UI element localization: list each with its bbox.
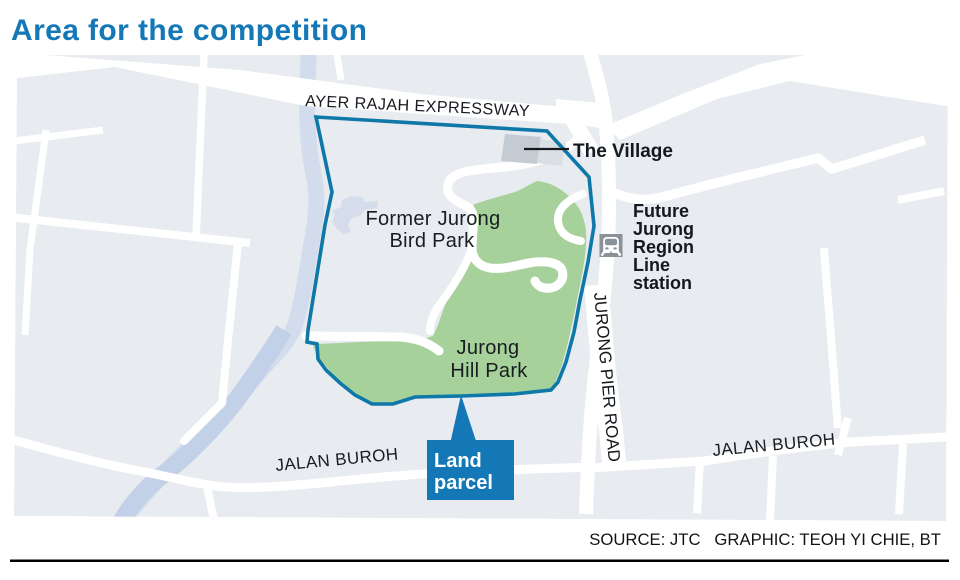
svg-text:Jurong: Jurong <box>633 219 694 239</box>
svg-text:The Village: The Village <box>573 141 673 162</box>
svg-text:Bird Park: Bird Park <box>390 230 476 252</box>
svg-text:parcel: parcel <box>434 472 493 494</box>
svg-text:Line: Line <box>633 255 670 275</box>
svg-text:Region: Region <box>633 237 694 257</box>
svg-text:SOURCE: JTC GRAPHIC: TEOH YI: SOURCE: JTC GRAPHIC: TEOH YI CHIE, BT <box>589 530 941 549</box>
svg-text:Jurong: Jurong <box>457 337 520 359</box>
svg-text:Future: Future <box>633 201 689 221</box>
svg-text:station: station <box>633 273 692 293</box>
svg-text:Hill Park: Hill Park <box>450 360 528 382</box>
svg-text:Former Jurong: Former Jurong <box>365 208 500 230</box>
svg-text:Land: Land <box>434 450 482 472</box>
svg-text:Area for the competition: Area for the competition <box>11 14 367 47</box>
